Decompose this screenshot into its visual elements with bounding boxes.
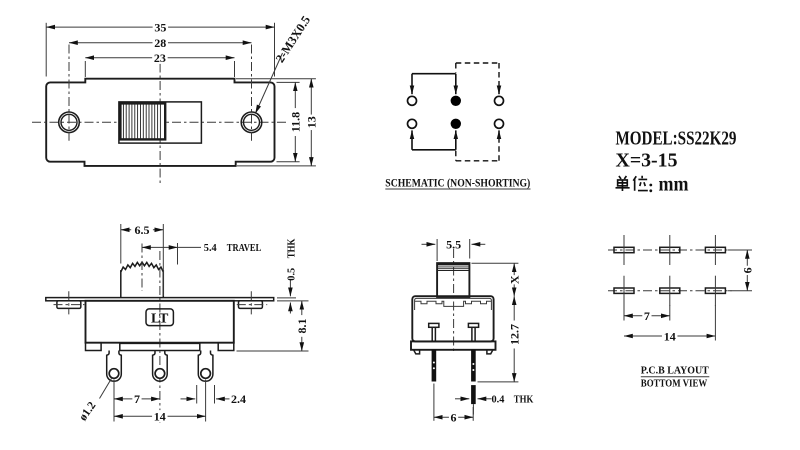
svg-text:P.C.B LAYOUT: P.C.B LAYOUT bbox=[641, 366, 709, 377]
svg-text:mm: mm bbox=[659, 175, 689, 196]
svg-text:THK: THK bbox=[514, 395, 534, 406]
svg-text:23: 23 bbox=[154, 51, 166, 65]
svg-text:5.4: 5.4 bbox=[204, 243, 217, 254]
svg-text:13: 13 bbox=[305, 116, 319, 128]
svg-text:11.8: 11.8 bbox=[289, 112, 303, 132]
svg-text:14: 14 bbox=[664, 329, 676, 343]
svg-text:6: 6 bbox=[451, 411, 457, 425]
svg-text:5.5: 5.5 bbox=[446, 237, 461, 251]
svg-text:0.5: 0.5 bbox=[287, 268, 298, 281]
svg-text:12.7: 12.7 bbox=[507, 324, 521, 345]
svg-text:8.1: 8.1 bbox=[295, 318, 309, 333]
svg-text:MODEL:SS22K29: MODEL:SS22K29 bbox=[616, 129, 737, 150]
svg-text:X: X bbox=[507, 275, 521, 284]
svg-text:35: 35 bbox=[154, 20, 166, 34]
svg-text:7: 7 bbox=[134, 392, 140, 406]
svg-text:BOTTOM VIEW: BOTTOM VIEW bbox=[641, 378, 708, 389]
svg-text:TRAVEL: TRAVEL bbox=[227, 243, 262, 254]
svg-text:28: 28 bbox=[154, 36, 166, 50]
svg-text:7: 7 bbox=[644, 309, 650, 323]
svg-text:THK: THK bbox=[287, 239, 298, 259]
svg-text:6.5: 6.5 bbox=[135, 223, 150, 237]
svg-text:LT: LT bbox=[151, 311, 169, 326]
svg-text:X=3-15: X=3-15 bbox=[616, 151, 678, 172]
svg-text:0.4: 0.4 bbox=[492, 395, 505, 406]
svg-text:14: 14 bbox=[154, 410, 166, 424]
svg-text:6: 6 bbox=[741, 267, 755, 273]
svg-text:2.4: 2.4 bbox=[231, 392, 246, 406]
svg-text:SCHEMATIC (NON-SHORTING): SCHEMATIC (NON-SHORTING) bbox=[385, 177, 530, 189]
